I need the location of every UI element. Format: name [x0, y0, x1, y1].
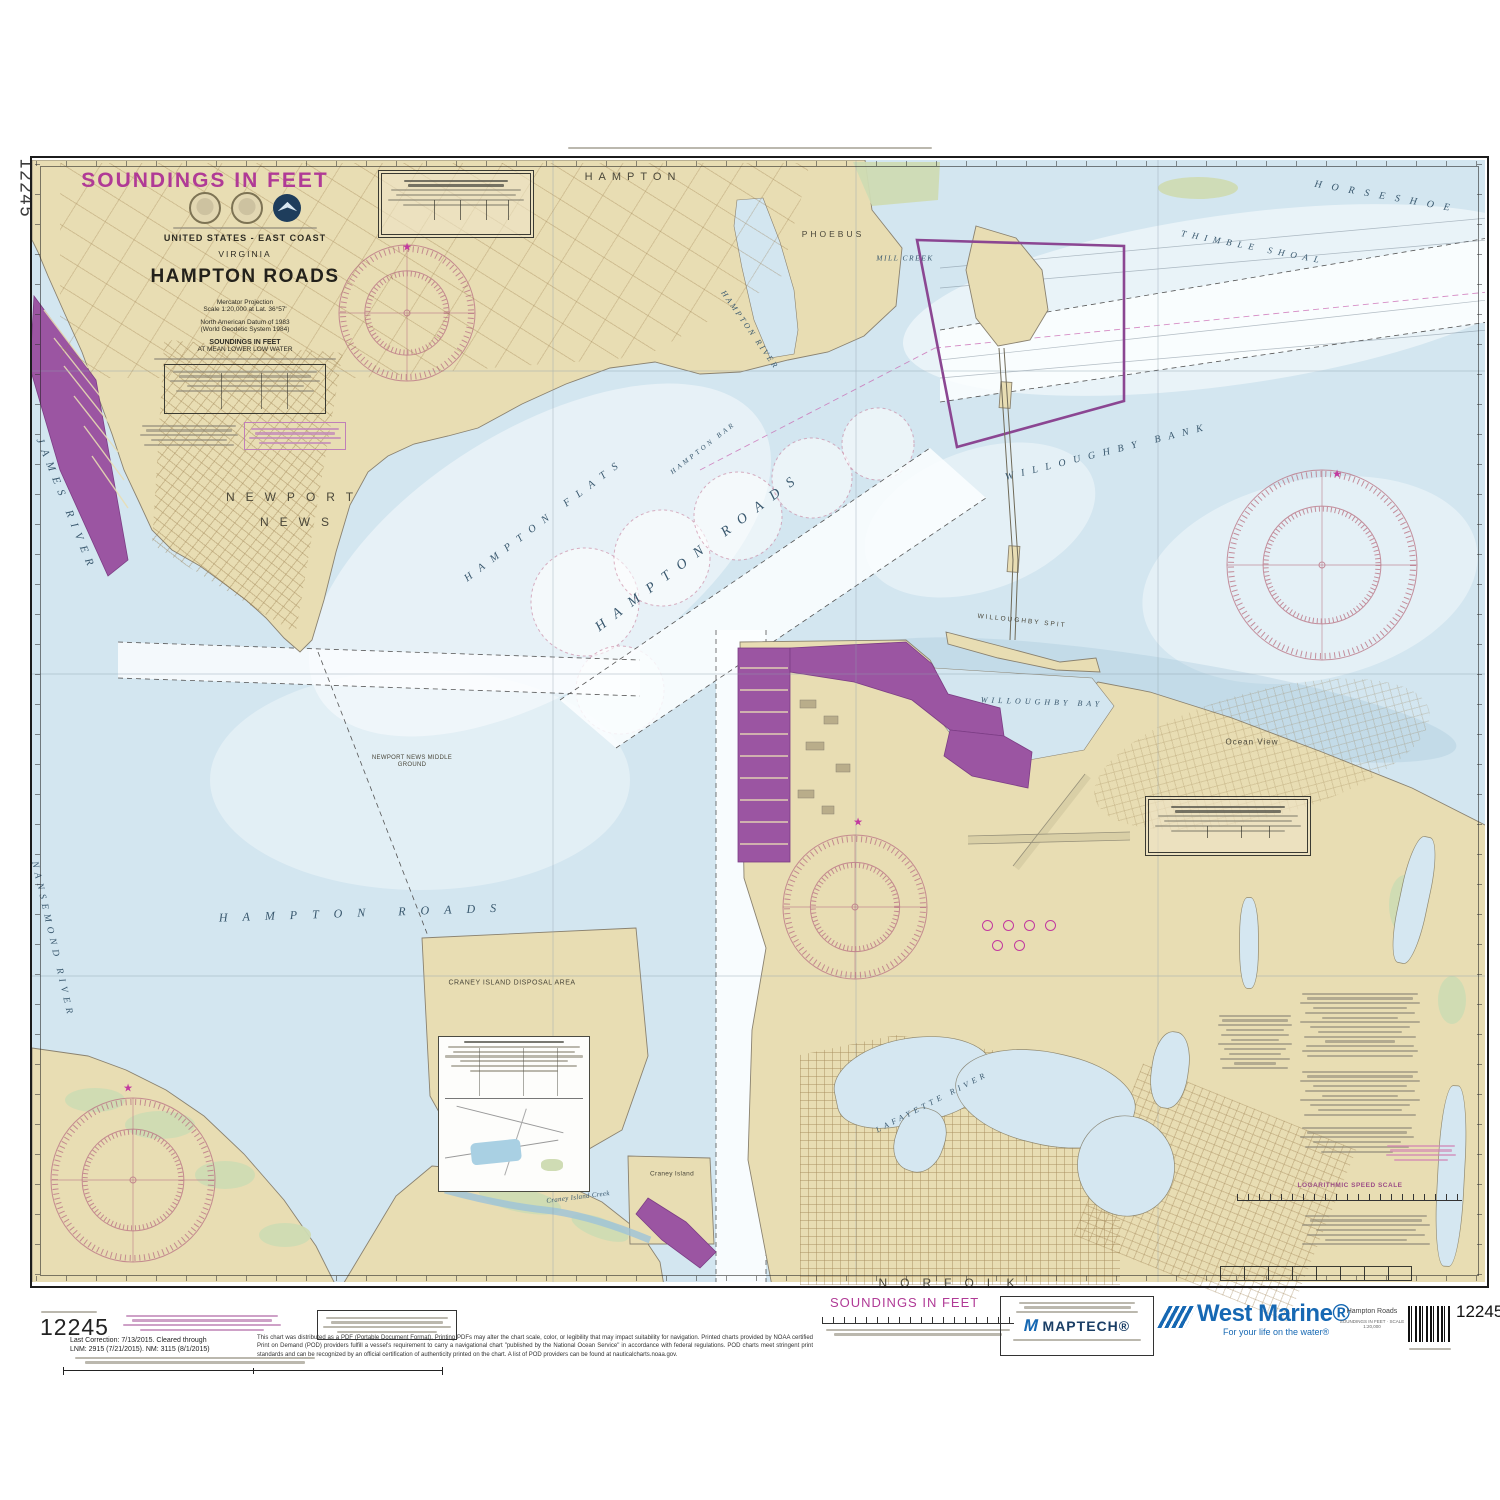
noaa-seal-icon — [273, 194, 301, 222]
title-scale: Scale 1:20,000 at Lat. 36°57' — [138, 306, 352, 313]
title-projection: Mercator Projection — [138, 299, 352, 306]
inset-mini-map — [445, 1101, 583, 1183]
log-speed-scale-label: LOGARITHMIC SPEED SCALE — [1250, 1182, 1450, 1189]
footer-speed-scale-numbers — [822, 1326, 1014, 1338]
title-soundings-2: AT MEAN LOWER LOW WATER — [138, 346, 352, 353]
footer-bar: 12245 Last Correction: 7/13/2015. Cleare… — [0, 1288, 1500, 1388]
mason-creek-water — [1240, 898, 1258, 988]
tide-table-right — [1145, 796, 1311, 856]
footer-speed-scale — [822, 1314, 1014, 1324]
agency-caption — [170, 227, 320, 229]
log-speed-scale-ruler — [1237, 1192, 1462, 1201]
commerce-seal-icon — [189, 192, 221, 224]
top-margin-fine-print — [560, 144, 940, 151]
title-region: UNITED STATES - EAST COAST — [138, 233, 352, 243]
title-block: UNITED STATES - EAST COAST VIRGINIA HAMP… — [138, 192, 352, 462]
footer-chart-number-right: 12245 — [1456, 1302, 1500, 1322]
anchorage-berth-circles — [982, 920, 1082, 956]
barcode — [1408, 1306, 1452, 1342]
chart-sheet: 12245 — [0, 0, 1500, 1500]
chart-notes-block: LOGARITHMIC SPEED SCALE — [1210, 990, 1475, 1285]
title-note-right — [244, 422, 346, 450]
inset-water — [470, 1138, 522, 1165]
title-note-left — [140, 422, 238, 449]
product-title: Hampton Roads — [1340, 1308, 1404, 1315]
maptech-logo-icon: M — [1022, 1316, 1040, 1336]
barcode-digits — [1408, 1345, 1452, 1352]
west-marine-icon — [1157, 1306, 1197, 1328]
footer-magenta-note — [123, 1312, 281, 1334]
scale-bar-box — [1220, 1266, 1412, 1281]
title-soundings-1: SOUNDINGS IN FEET — [138, 339, 352, 346]
agency-seals — [138, 192, 352, 224]
west-marine-tagline: For your life on the water® — [1223, 1327, 1329, 1337]
title-tide-table — [164, 364, 326, 414]
chart-title: HAMPTON ROADS — [138, 266, 352, 288]
tide-table — [378, 170, 534, 238]
title-fine-print — [150, 358, 340, 360]
product-subtitle: SOUNDINGS IN FEET · SCALE 1:20,000 — [1332, 1319, 1412, 1329]
maptech-logo-text: MAPTECH® — [1043, 1318, 1131, 1334]
west-marine-text: West Marine® — [1197, 1300, 1350, 1328]
footer-soundings-label: SOUNDINGS IN FEET — [830, 1295, 979, 1310]
maptech-box: M MAPTECH® — [1000, 1296, 1154, 1356]
footer-corrections: Last Correction: 7/13/2015. Cleared thro… — [70, 1337, 210, 1355]
title-state: VIRGINIA — [138, 249, 352, 259]
footer-pod-note: This chart was distributed as a PDF (Por… — [257, 1334, 813, 1359]
coast-survey-seal-icon — [231, 192, 263, 224]
title-datum-2: (World Geodetic System 1984) — [138, 326, 352, 333]
craney-inset-box — [438, 1036, 590, 1192]
title-datum-1: North American Datum of 1983 — [138, 319, 352, 326]
footer-correction-rule — [63, 1370, 443, 1371]
